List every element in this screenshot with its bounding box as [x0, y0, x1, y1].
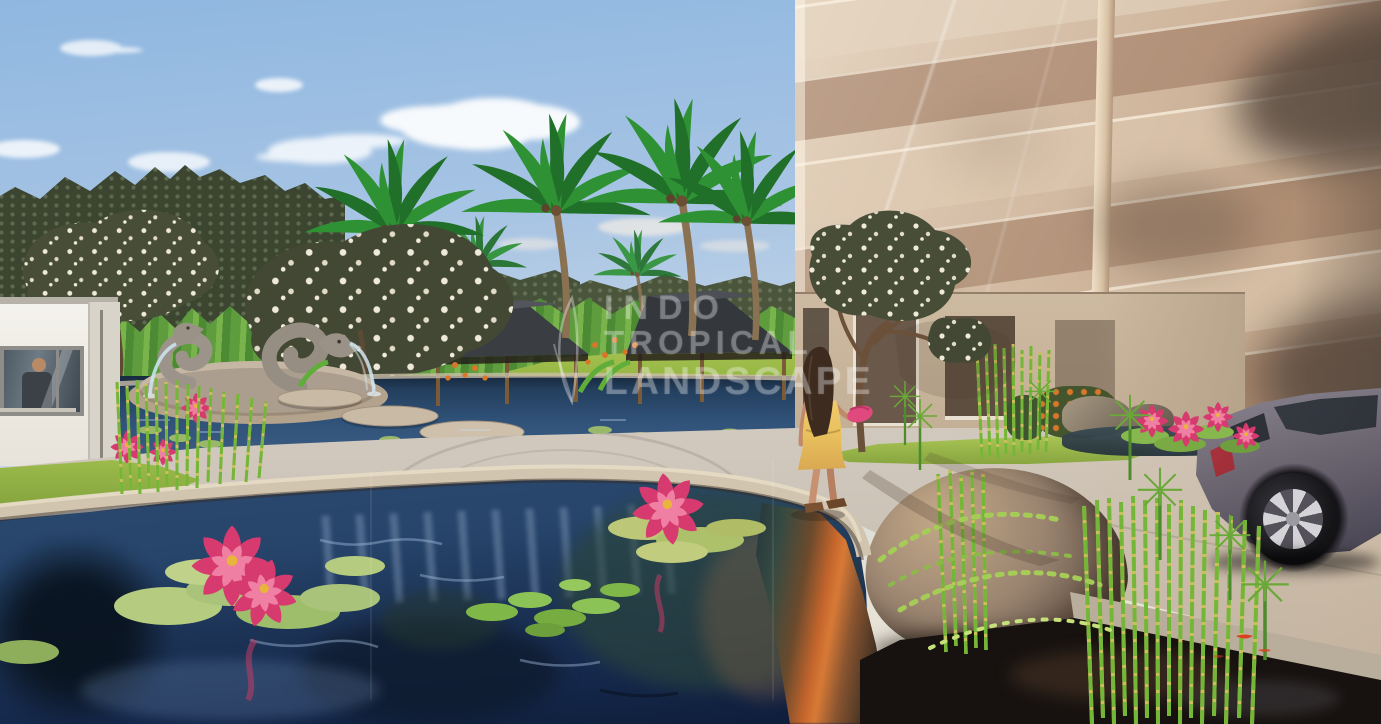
render-scene: INDO TROPICAL LANDSCAPE: [0, 0, 1381, 724]
creeping-vine: [880, 514, 1110, 648]
horsetail-reeds: [938, 470, 986, 654]
watermark-logo-icon: [548, 294, 598, 418]
watermark-line3: LANDSCAPE: [604, 361, 874, 402]
watermark-line1: INDO: [604, 290, 874, 326]
watermark-line2: TROPICAL: [604, 326, 874, 361]
woman-leg: [830, 467, 834, 502]
lily-pads: [0, 425, 1260, 664]
watermark-hairline: [772, 460, 774, 700]
horsetail-reeds: [117, 378, 266, 494]
watermark-hairline: [370, 470, 372, 700]
horsetail-reeds: [1084, 496, 1259, 724]
watermark: INDO TROPICAL LANDSCAPE: [548, 290, 868, 420]
